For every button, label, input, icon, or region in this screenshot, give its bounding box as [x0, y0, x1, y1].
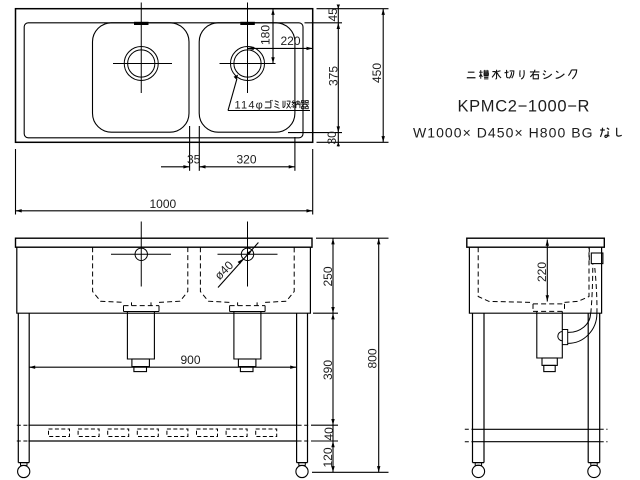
- svg-text:40: 40: [322, 427, 336, 441]
- svg-text:30: 30: [325, 131, 339, 145]
- svg-text:114φ: 114φ: [235, 100, 264, 112]
- svg-text:180: 180: [259, 25, 273, 45]
- svg-text:1000: 1000: [150, 197, 177, 211]
- svg-text:320: 320: [237, 153, 257, 167]
- svg-text:220: 220: [535, 262, 549, 282]
- svg-text:390: 390: [321, 360, 335, 380]
- svg-text:450: 450: [370, 63, 384, 83]
- svg-text:45: 45: [326, 8, 340, 22]
- svg-text:375: 375: [327, 66, 341, 86]
- svg-text:W1000× D450× H800 BG: W1000× D450× H800 BG: [413, 124, 594, 140]
- svg-text:250: 250: [321, 266, 335, 286]
- svg-text:120: 120: [321, 447, 335, 467]
- svg-text:900: 900: [181, 353, 201, 367]
- svg-text:220: 220: [281, 34, 301, 48]
- svg-text:35: 35: [187, 153, 201, 167]
- svg-text:KPMC2−1000−R: KPMC2−1000−R: [458, 98, 591, 116]
- svg-text:800: 800: [366, 348, 380, 368]
